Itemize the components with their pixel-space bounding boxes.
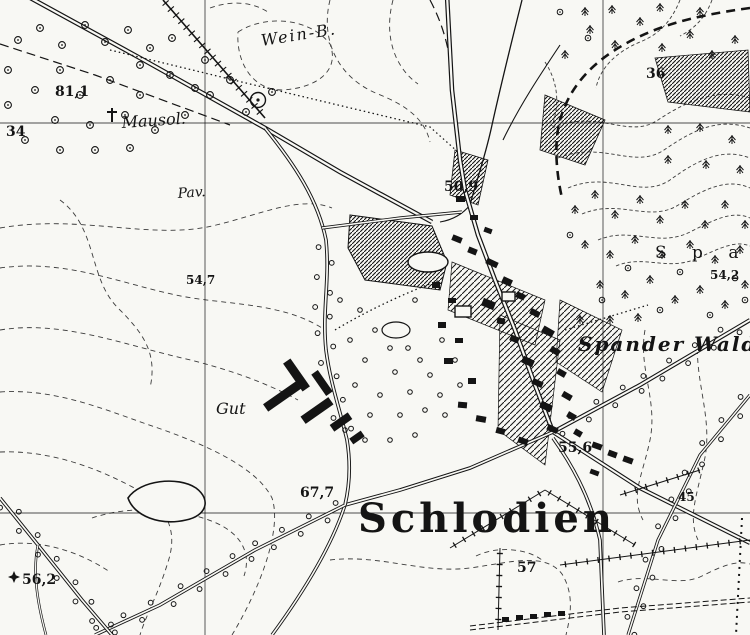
topographic-map-svg: Wein-B. Mausol. Pav. Gut S p a n Spander… [0,0,750,635]
spot-height-54-7: 54,7 [186,273,215,287]
spot-height-55-6: 55,6 [558,440,592,456]
spot-height-54-2: 54,2 [710,268,739,282]
spot-height-56-2: 56,2 [22,572,56,588]
label-gut-estate: Gut [216,399,246,418]
spot-height-50-9: 50,9 [444,179,478,195]
spot-height-67-7: 67,7 [300,485,334,501]
large-tree-dot [256,98,259,101]
spot-height-34: 34 [6,124,26,140]
spot-height-81-1: 81,1 [55,84,89,100]
spot-height-57: 57 [517,560,536,576]
map-canvas: Wein-B. Mausol. Pav. Gut S p a n Spander… [0,0,750,635]
label-schlodien: Schlodien [358,495,616,542]
label-pavilion: Pav. [176,184,206,202]
label-spander-wald: Spander Wald [578,332,750,356]
spot-height-36: 36 [646,66,665,82]
label-span-spread: S p a n [655,243,750,263]
spot-height-45: 45 [678,490,695,504]
